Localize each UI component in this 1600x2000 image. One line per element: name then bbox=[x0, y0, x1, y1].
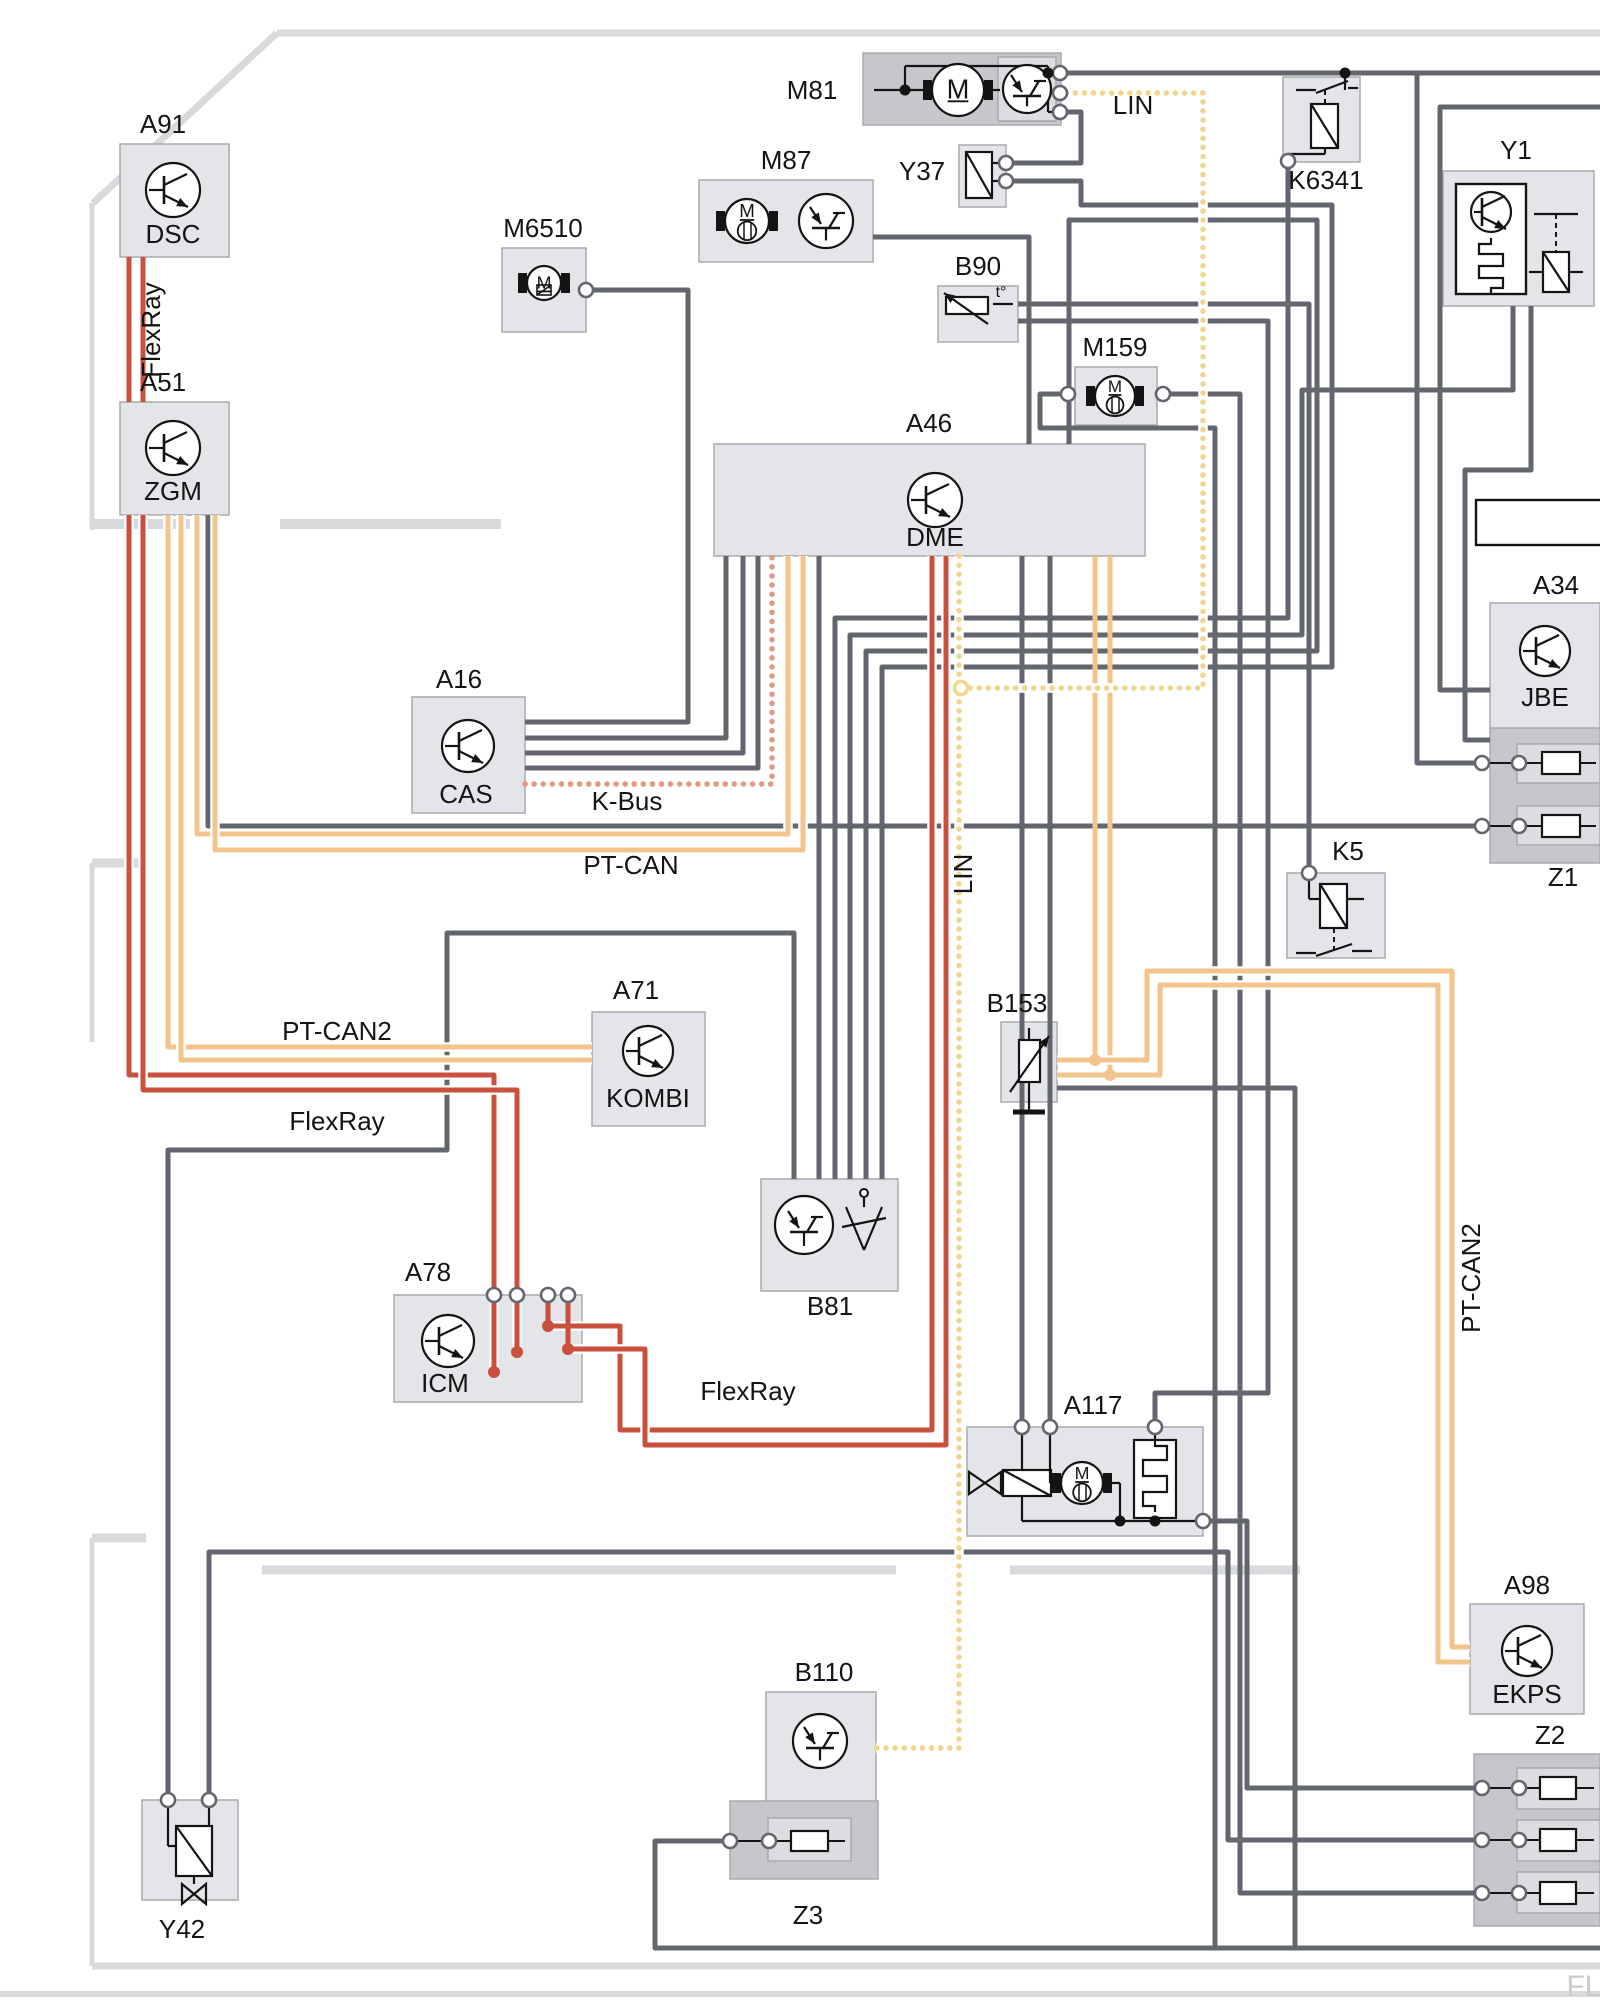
terminal-open bbox=[1512, 819, 1526, 833]
label-k-bus: K-Bus bbox=[592, 786, 663, 816]
terminal-open bbox=[1148, 1420, 1162, 1434]
terminal-open bbox=[1196, 1514, 1210, 1528]
lin-junction-ring bbox=[955, 682, 968, 695]
label-dme: DME bbox=[906, 522, 964, 552]
label-flexray: FlexRay bbox=[289, 1106, 384, 1136]
terminal-open bbox=[762, 1834, 776, 1848]
bus-ptcan2-kombi-a bbox=[168, 515, 592, 1047]
terminal-open bbox=[202, 1793, 216, 1807]
wire-m159-left bbox=[1040, 394, 1215, 1948]
label-lin: LIN bbox=[1113, 90, 1153, 120]
label-t-: t° bbox=[996, 284, 1007, 301]
m159-motor-icon-letter: M bbox=[1108, 377, 1122, 396]
terminal-open bbox=[1043, 1420, 1057, 1434]
m87-motor-icon-brush bbox=[769, 211, 778, 231]
label-fl: FL bbox=[1566, 1970, 1600, 2000]
label-icm: ICM bbox=[421, 1368, 469, 1398]
label-z2: Z2 bbox=[1535, 1720, 1565, 1750]
terminal-open bbox=[1302, 866, 1316, 880]
label-jbe: JBE bbox=[1521, 682, 1569, 712]
label-kombi: KOMBI bbox=[606, 1083, 690, 1113]
terminal-open bbox=[999, 156, 1013, 170]
label-a78: A78 bbox=[405, 1257, 451, 1287]
wire-zgm-z1-row2 bbox=[208, 515, 1482, 826]
junction-dot bbox=[1340, 68, 1351, 79]
flexray-junction-dot bbox=[488, 1366, 500, 1378]
label-y1: Y1 bbox=[1500, 135, 1532, 165]
label-flexray: FlexRay bbox=[700, 1376, 795, 1406]
terminal-open bbox=[1475, 756, 1489, 770]
wiring-diagram-page: MMMMMA91DSCA51ZGMFlexRayM6510M87M81Y37B9… bbox=[0, 0, 1600, 2000]
z2-fuse-2-fuse-icon bbox=[1540, 1829, 1576, 1851]
label-k5: K5 bbox=[1332, 836, 1364, 866]
wiring-diagram-canvas: MMMMMA91DSCA51ZGMFlexRayM6510M87M81Y37B9… bbox=[0, 0, 1600, 2000]
label-z1: Z1 bbox=[1548, 862, 1578, 892]
a117-motor-icon-letter: M bbox=[1075, 1463, 1090, 1483]
bus-kbus-cas-dme bbox=[525, 556, 772, 784]
label-a71: A71 bbox=[613, 975, 659, 1005]
terminal-open bbox=[1512, 756, 1526, 770]
a117-motor-icon-brush bbox=[1052, 1473, 1061, 1493]
label-a117: A117 bbox=[1064, 1390, 1123, 1420]
wire-m6510-cas bbox=[525, 290, 688, 722]
label-y42: Y42 bbox=[159, 1914, 205, 1944]
label-a46: A46 bbox=[906, 408, 952, 438]
bus-ptcan2-kombi-a-casing bbox=[168, 515, 592, 1047]
ptcan2-junction-dot bbox=[1089, 1054, 1101, 1066]
box-edge-right bbox=[1476, 500, 1600, 545]
label-b90: B90 bbox=[955, 251, 1001, 281]
b81-antenna-icon bbox=[860, 1189, 868, 1197]
terminal-open bbox=[999, 174, 1013, 188]
terminal-open bbox=[1475, 1886, 1489, 1900]
bus-ptcan2-kombi-b bbox=[181, 515, 592, 1060]
label-k6341: K6341 bbox=[1288, 165, 1363, 195]
label-dsc: DSC bbox=[146, 219, 201, 249]
bus-flexray-dme-icm-c-casing bbox=[548, 556, 932, 1430]
terminal-open bbox=[1156, 387, 1170, 401]
terminal-open bbox=[1512, 1781, 1526, 1795]
label-ekps: EKPS bbox=[1492, 1679, 1561, 1709]
junction-dot bbox=[900, 85, 911, 96]
z1-fuse-1-fuse-icon bbox=[1542, 752, 1580, 774]
z2-fuse-1-fuse-icon bbox=[1540, 1777, 1576, 1799]
terminal-open bbox=[1015, 1420, 1029, 1434]
terminal-open bbox=[1475, 819, 1489, 833]
label-b81: B81 bbox=[807, 1291, 853, 1321]
terminal-open bbox=[1053, 105, 1067, 119]
terminal-open bbox=[561, 1288, 575, 1302]
terminal-open bbox=[1512, 1833, 1526, 1847]
label-a34: A34 bbox=[1533, 570, 1579, 600]
m87-motor-icon-letter: M bbox=[739, 200, 755, 221]
label-m81: M81 bbox=[787, 75, 838, 105]
z2-fuse-3-fuse-icon bbox=[1540, 1882, 1576, 1904]
terminal-open bbox=[1475, 1781, 1489, 1795]
terminal-open bbox=[1053, 66, 1067, 80]
bus-flexray-dme-icm-c bbox=[548, 556, 932, 1430]
m87-motor-icon-brush bbox=[716, 211, 725, 231]
m159-motor-icon-brush bbox=[1135, 386, 1144, 406]
label-m87: M87 bbox=[761, 145, 812, 175]
flexray-junction-dot bbox=[562, 1343, 574, 1355]
terminal-open bbox=[161, 1793, 175, 1807]
label-m159: M159 bbox=[1082, 332, 1147, 362]
wire-cas-dme-1 bbox=[525, 556, 726, 738]
label-lin: LIN bbox=[948, 854, 978, 894]
label-cas: CAS bbox=[439, 779, 492, 809]
label-m6510: M6510 bbox=[503, 213, 583, 243]
m159-motor-icon-brush bbox=[1086, 386, 1095, 406]
label-flexray: FlexRay bbox=[136, 282, 166, 377]
label-a91: A91 bbox=[140, 109, 186, 139]
wire-k6341-b81 bbox=[835, 161, 1288, 1179]
flexray-junction-dot bbox=[511, 1346, 523, 1358]
label-pt-can2: PT-CAN2 bbox=[1456, 1223, 1486, 1333]
m6510-motor-icon-brush bbox=[518, 273, 527, 293]
label-a16: A16 bbox=[436, 664, 482, 694]
label-y37: Y37 bbox=[899, 156, 945, 186]
terminal-open bbox=[1475, 1833, 1489, 1847]
m6510-motor-icon-brush bbox=[561, 273, 570, 293]
junction-dot bbox=[1043, 68, 1054, 79]
terminal-open bbox=[723, 1834, 737, 1848]
junction-dot bbox=[1115, 1516, 1126, 1527]
label-z3: Z3 bbox=[793, 1900, 823, 1930]
terminal-open bbox=[487, 1288, 501, 1302]
label-pt-can: PT-CAN bbox=[583, 850, 678, 880]
terminal-open bbox=[1512, 1886, 1526, 1900]
flexray-junction-dot bbox=[542, 1320, 554, 1332]
label-b110: B110 bbox=[795, 1657, 854, 1687]
terminal-open bbox=[579, 283, 593, 297]
terminal-open bbox=[1061, 387, 1075, 401]
terminal-open bbox=[541, 1288, 555, 1302]
terminal-open bbox=[510, 1288, 524, 1302]
label-a98: A98 bbox=[1504, 1570, 1550, 1600]
terminal-open bbox=[1053, 86, 1067, 100]
m81-motor-icon-brush bbox=[923, 80, 932, 100]
a117-motor-icon-brush bbox=[1103, 1473, 1112, 1493]
m81-motor-icon-letter: M bbox=[947, 73, 970, 104]
label-pt-can2: PT-CAN2 bbox=[282, 1016, 392, 1046]
z1-fuse-2-fuse-icon bbox=[1542, 815, 1580, 837]
label-b153: B153 bbox=[987, 988, 1048, 1018]
junction-dot bbox=[1150, 1516, 1161, 1527]
label-zgm: ZGM bbox=[144, 476, 202, 506]
ptcan2-junction-dot bbox=[1104, 1069, 1116, 1081]
z3-fuse-fuse-icon bbox=[791, 1831, 828, 1851]
m81-motor-icon-brush bbox=[984, 80, 993, 100]
bus-ptcan2-kombi-b-casing bbox=[181, 515, 592, 1060]
